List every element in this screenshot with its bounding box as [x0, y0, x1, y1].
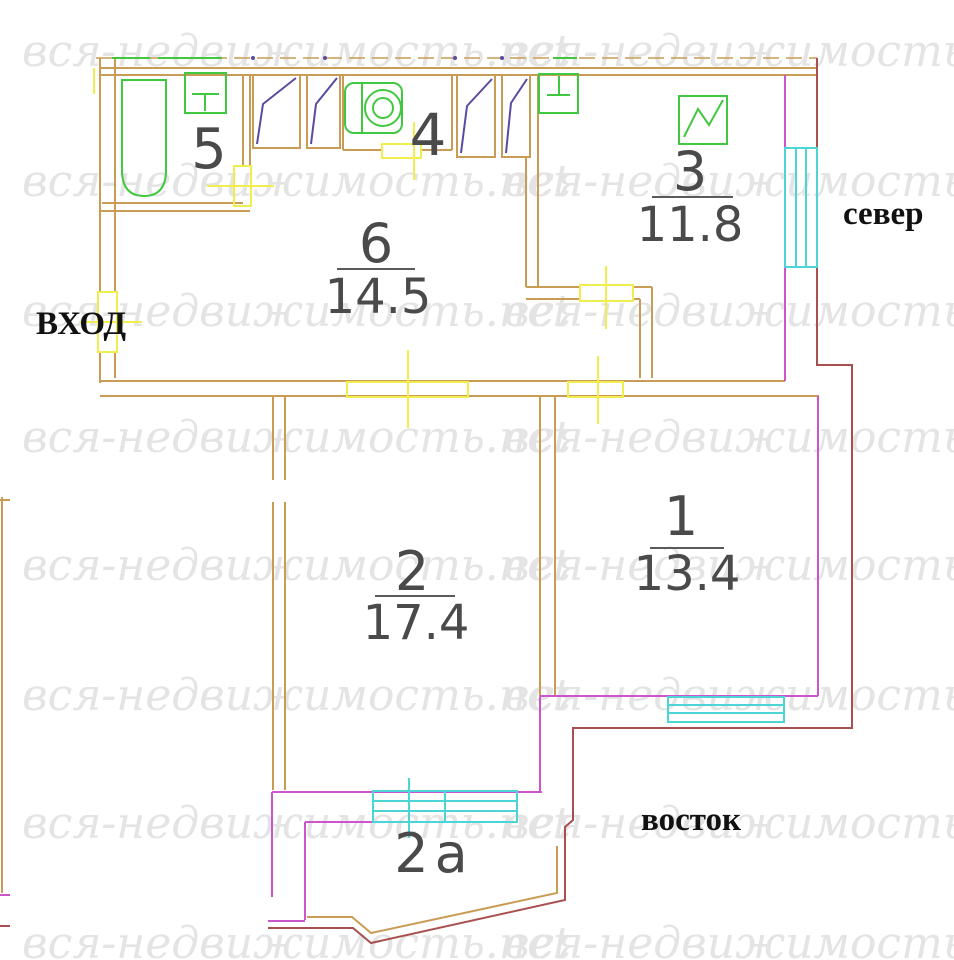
floor-plan-drawing: вся-недвижимость.net вся-недвижимость.ne… [0, 0, 954, 960]
room3-number: 3 [673, 140, 707, 203]
room6-number: 6 [359, 212, 393, 275]
watermark-text: вся-недвижимость.net [22, 26, 571, 77]
room1-area: 13.4 [634, 546, 741, 602]
room3-area: 11.8 [637, 197, 744, 253]
wall-dot [500, 56, 504, 60]
stove-icon-zigzag [684, 100, 723, 137]
closet-door-leaf [461, 79, 492, 153]
room-labels: 5 4 6 14.5 3 11.8 2 17.4 1 13.4 2а [191, 101, 743, 885]
entrance-label: ВХОД [36, 306, 126, 342]
windows [373, 148, 817, 838]
room5-number: 5 [191, 117, 227, 182]
watermark-text: вся-недвижимость.net [504, 918, 954, 960]
room1-number: 1 [664, 485, 698, 548]
room4-number: 4 [410, 101, 447, 169]
watermark-text: вся-недвижимость.net [22, 156, 571, 207]
compass-east-label: восток [641, 802, 741, 838]
watermark-text: вся-недвижимость.net [22, 540, 571, 591]
watermark-text: вся-недвижимость.net [504, 412, 954, 463]
room6-area: 14.5 [325, 269, 432, 325]
closet-door-leaf [506, 79, 527, 153]
toilet-icon-bowl [365, 90, 401, 126]
watermark-text: вся-недвижимость.net [504, 286, 954, 337]
watermark-layer: вся-недвижимость.net вся-недвижимость.ne… [22, 26, 954, 960]
door-markers [80, 68, 633, 428]
watermark-text: вся-недвижимость.net [22, 918, 571, 960]
watermark-text: вся-недвижимость.net [22, 670, 571, 721]
wall-dot [251, 56, 255, 60]
compass-north-label: север [843, 196, 924, 232]
stove-icon [679, 96, 727, 144]
wall-dot [453, 56, 457, 60]
watermark-text: вся-недвижимость.net [22, 412, 571, 463]
watermark-text: вся-недвижимость.net [22, 798, 571, 849]
closet-door-leaf [257, 78, 296, 144]
balcony-number: 2а [394, 822, 473, 885]
door-room1 [568, 382, 623, 397]
room2-area: 17.4 [363, 595, 470, 651]
watermark-text: вся-недвижимость.net [504, 26, 954, 77]
wall-dot [323, 56, 327, 60]
closet-box [253, 75, 300, 148]
floor-plan-page: вся-недвижимость.net вся-недвижимость.ne… [0, 0, 954, 960]
toilet-icon-bowl-inner [373, 98, 393, 118]
room2-number: 2 [395, 540, 429, 603]
closet-door-leaf [311, 78, 337, 144]
